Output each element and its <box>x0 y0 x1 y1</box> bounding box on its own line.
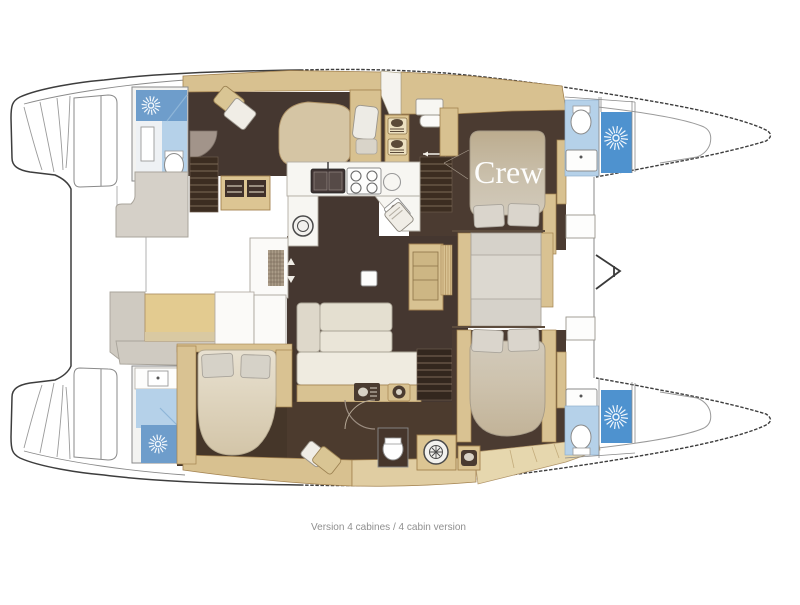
svg-text:Crew: Crew <box>474 154 543 190</box>
svg-text:Version 4 cabines / 4 cabin ve: Version 4 cabines / 4 cabin version <box>311 521 466 533</box>
